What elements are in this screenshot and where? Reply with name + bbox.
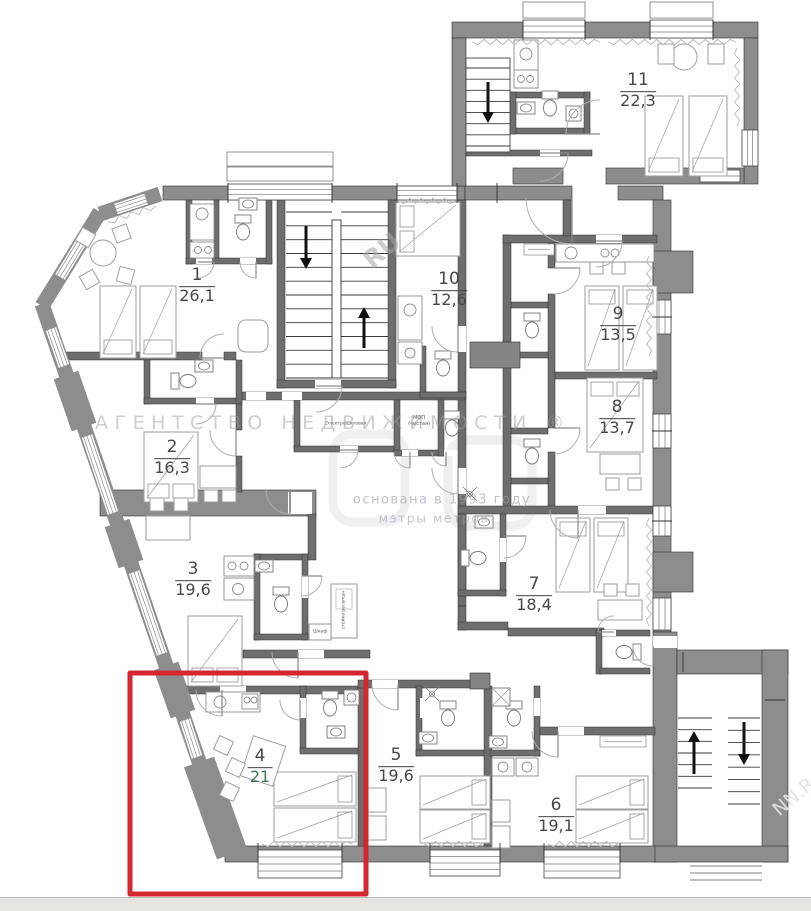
room-label-2: 2 16,3 [154,439,190,477]
room-area: 16,3 [154,459,190,477]
room-number: 7 [516,576,552,596]
room-label-5: 5 19,6 [378,747,414,785]
room-label-10: 10 12,6 [431,271,467,309]
room-area: 22,3 [620,92,656,110]
room-label-7: 7 18,4 [516,576,552,614]
room-label-4: 4 21 [248,748,273,786]
room-label-3: 3 19,6 [175,561,211,599]
floor-plan: 1 26,1 2 16,3 3 19,6 4 21 5 19,6 6 19,1 … [0,0,811,911]
room-number: 11 [620,72,656,92]
room-area: 12,6 [431,291,467,309]
bottom-strip [0,897,811,911]
room-label-11: 11 22,3 [620,72,656,110]
label-reception-desk: стойка ресепшн [341,591,346,630]
room-area: 18,4 [516,596,552,614]
room-area: 19,6 [378,767,414,785]
room-label-6: 6 19,1 [538,797,574,835]
label-electrical-room: Электрощитовая [326,421,366,426]
room-label-8: 8 13,7 [599,399,635,437]
room-number: 9 [600,306,636,326]
room-label-9: 9 13,5 [600,306,636,344]
room-number: 3 [175,561,211,581]
room-area: 26,1 [179,287,215,305]
room-label-1: 1 26,1 [179,267,215,305]
room-area: 13,5 [600,326,636,344]
room-number: 2 [154,439,190,459]
label-mop-room: МОП (чистая) [408,415,430,427]
label-wardrobe: Шкаф [313,629,327,634]
room-number: 8 [599,399,635,419]
room-area: 21 [248,768,273,786]
room-number: 10 [431,271,467,291]
room-number: 1 [179,267,215,287]
room-number: 5 [378,747,414,767]
room-number: 6 [538,797,574,817]
room-area: 13,7 [599,419,635,437]
room-number: 4 [248,748,273,768]
room-area: 19,6 [175,581,211,599]
room-area: 19,1 [538,817,574,835]
label-mop-line2: (чистая) [408,421,430,427]
